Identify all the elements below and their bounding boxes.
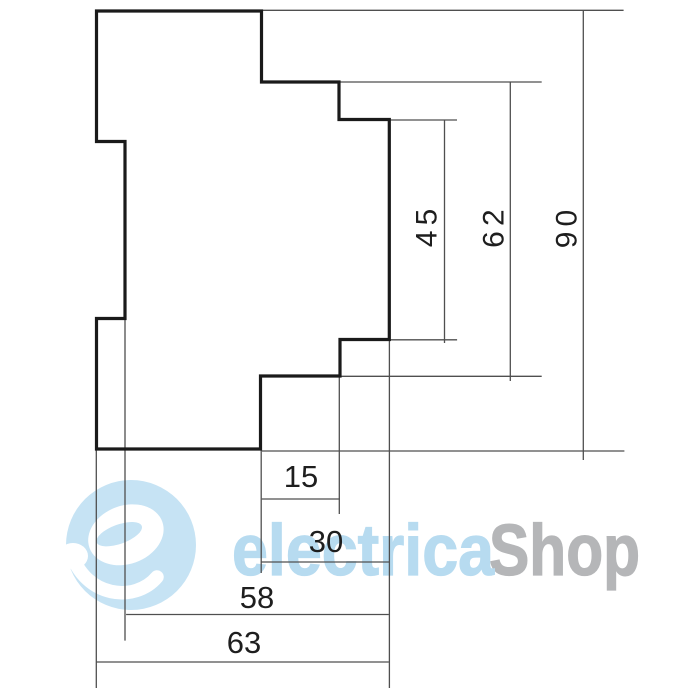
svg-text:30: 30 — [309, 524, 343, 559]
svg-text:Shop: Shop — [489, 511, 640, 591]
svg-text:15: 15 — [284, 459, 318, 494]
svg-text:63: 63 — [227, 625, 261, 660]
svg-text:58: 58 — [240, 580, 274, 615]
svg-text:electrica: electrica — [232, 511, 495, 591]
